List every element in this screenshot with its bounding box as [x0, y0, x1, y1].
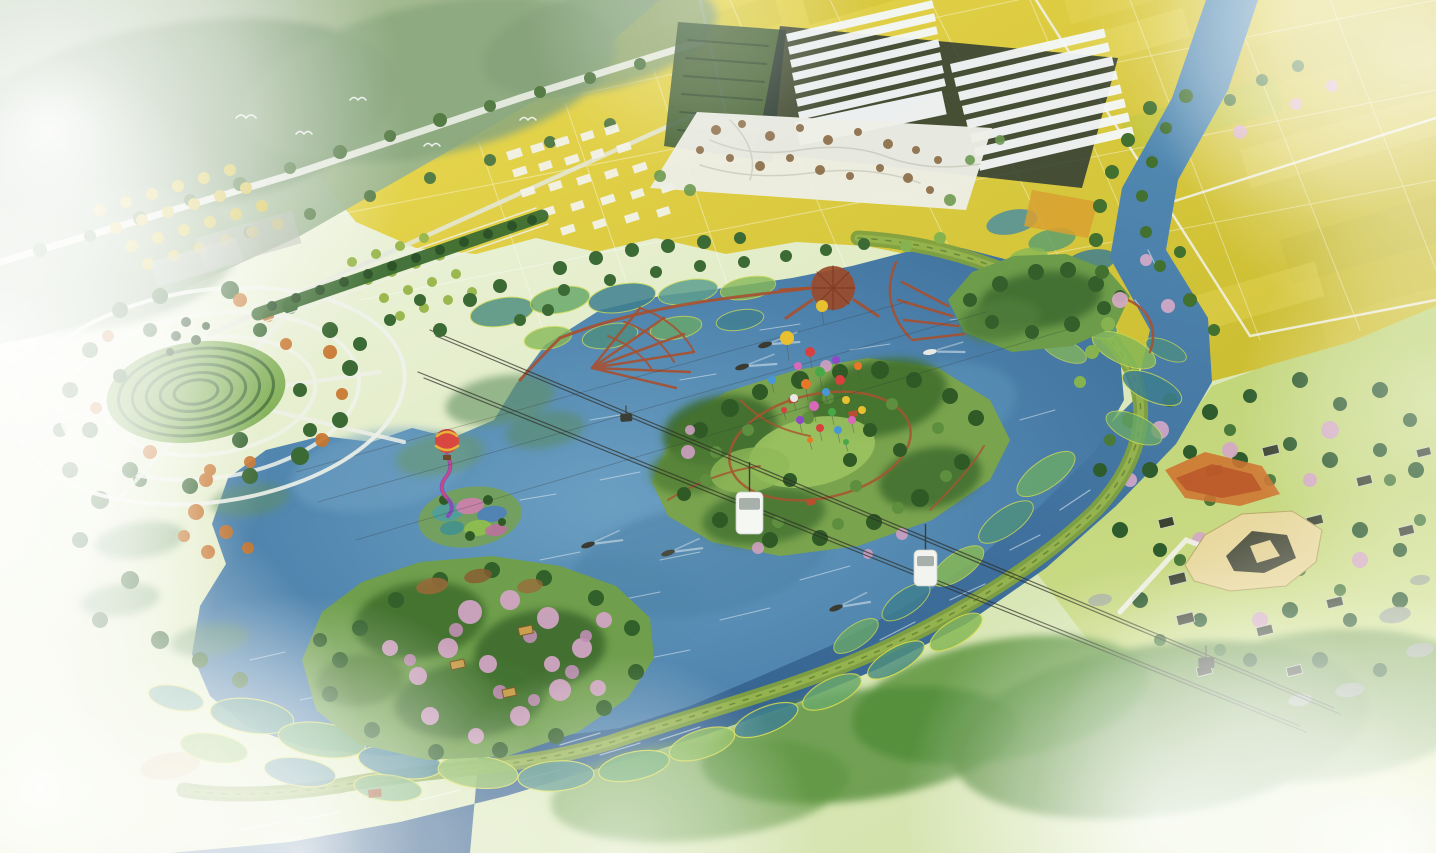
balloon — [822, 388, 830, 396]
balloon — [854, 362, 862, 370]
balloon — [809, 401, 819, 411]
balloon — [801, 379, 811, 389]
balloon — [832, 356, 840, 364]
wetland-park-rendering — [0, 0, 1436, 853]
balloon — [807, 437, 813, 443]
balloon — [768, 376, 776, 384]
balloon — [835, 375, 845, 385]
scene-layers — [0, 0, 1436, 853]
balloon — [816, 300, 828, 312]
balloon — [834, 426, 842, 434]
balloon — [843, 439, 849, 445]
balloon — [780, 331, 794, 345]
balloon — [828, 408, 836, 416]
balloon — [790, 394, 798, 402]
balloon — [781, 407, 787, 413]
balloon-basket — [443, 455, 451, 460]
balloon — [796, 416, 804, 424]
balloon — [794, 362, 802, 370]
balloon — [842, 396, 850, 404]
balloon — [805, 347, 815, 357]
balloon — [848, 416, 856, 424]
balloon — [815, 367, 825, 377]
aerial-scene-canvas — [0, 0, 1436, 853]
balloon — [858, 406, 866, 414]
balloon — [816, 424, 824, 432]
